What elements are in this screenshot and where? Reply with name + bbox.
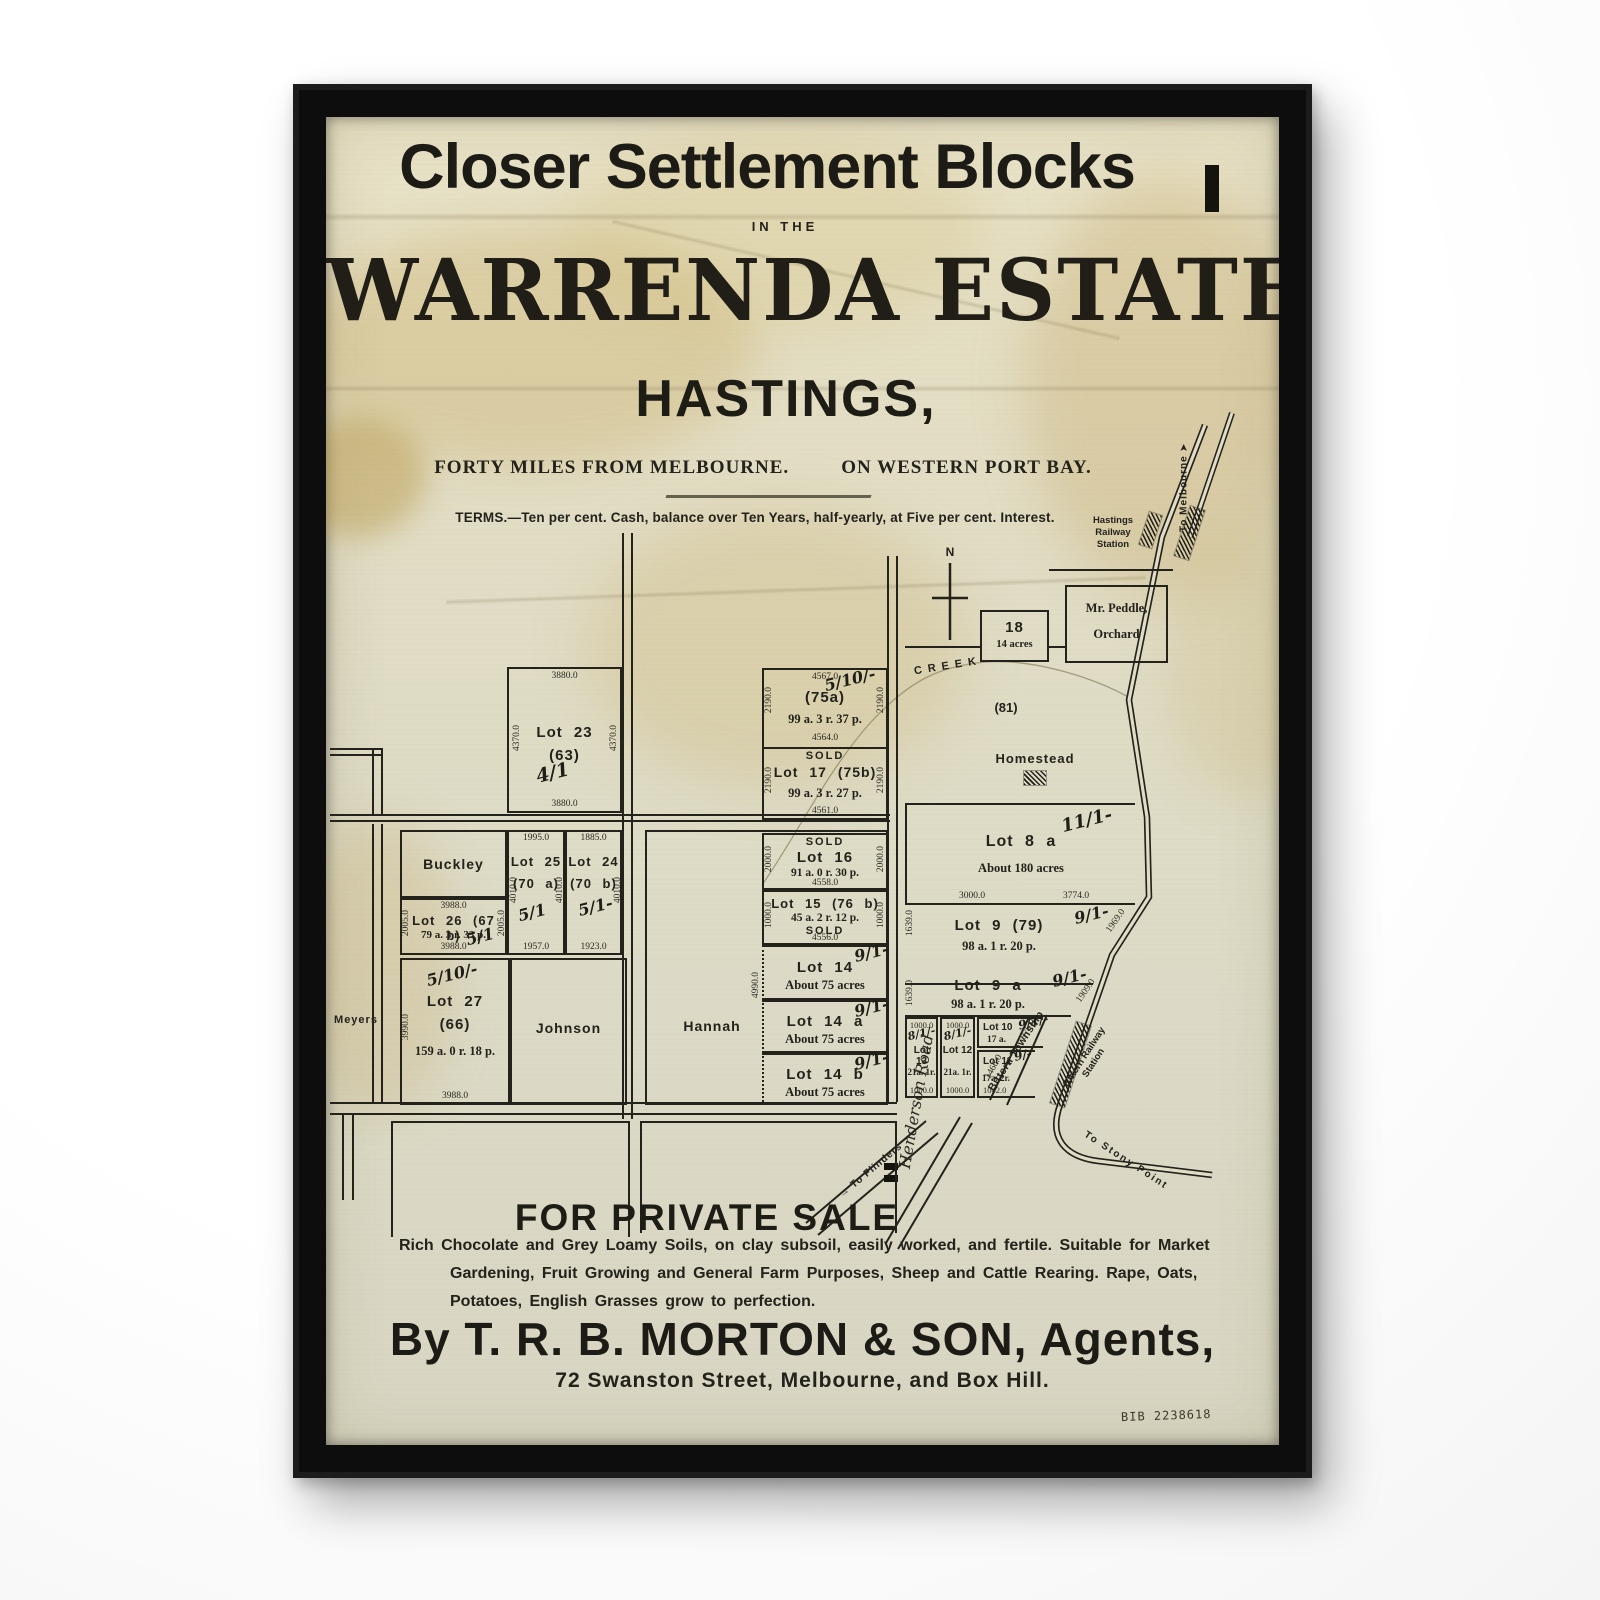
lot-name: Lot 17 (75b) [764, 764, 886, 780]
north-label: N [937, 545, 963, 559]
description-line: Rich Chocolate and Grey Loamy Soils, on … [399, 1237, 1210, 1255]
lot-dim: 1885.0 [567, 833, 620, 843]
lot-dim: 2190.0 [876, 678, 886, 722]
lot-dim: 4558.0 [764, 878, 886, 888]
owner-name-meyers: Meyers [328, 1014, 384, 1026]
block-81-label: (81) [966, 700, 1046, 715]
lot-dim: 1995.0 [509, 833, 563, 843]
lot-dim: 2190.0 [764, 678, 774, 722]
lot-name: Lot 24 [567, 854, 620, 869]
lot-area: About 75 acres [764, 978, 886, 993]
lot-dim: 3880.0 [509, 671, 620, 681]
lot-dim: 3990.0 [401, 1005, 411, 1049]
lot-16: SOLD Lot 16 91 a. 0 r. 30 p. 4558.0 [762, 833, 888, 890]
owner-block-buckley: Buckley [400, 830, 507, 898]
address-line: 72 Swanston Street, Melbourne, and Box H… [326, 1369, 1279, 1393]
lot-dim: 3774.0 [1063, 891, 1089, 901]
lot-name: Lot 9 (79) [905, 917, 1093, 934]
lot-name: Lot 27 [402, 993, 508, 1010]
description-line: Gardening, Fruit Growing and General Far… [450, 1265, 1197, 1283]
lot-name: Lot 16 [764, 849, 886, 866]
homestead-label: Homestead [990, 751, 1080, 766]
lot-dim: 4990.0 [751, 963, 761, 1007]
lot-dim: 3880.0 [509, 799, 620, 809]
lot-dim: 2000.0 [764, 837, 774, 881]
road-stub-far-left [342, 1115, 354, 1200]
lot-number: (66) [402, 1016, 508, 1033]
lot-name: Lot 12 [942, 1045, 973, 1056]
up-arrow-icon: ➤ [1179, 443, 1189, 452]
peddle-orchard: Mr. Peddle, Orchard [1065, 585, 1168, 663]
lot-dim: 4561.0 [764, 806, 886, 816]
lot-18: 18 14 acres [980, 610, 1049, 662]
lot-area: 98 a. 1 r. 20 p. [905, 939, 1093, 954]
lot-name: Lot 25 [509, 854, 563, 869]
owner-name: Johnson [512, 1020, 625, 1036]
lot-name: 18 [982, 619, 1047, 636]
owner-name: Hannah [657, 1018, 767, 1034]
lot-name: Lot 23 [509, 724, 620, 741]
road-henderson [887, 556, 898, 1102]
lot-17-block: 4567.0 (75a) 99 a. 3 r. 37 p. 4564.0 SOL… [762, 668, 888, 820]
lot-dim: 1923.0 [567, 942, 620, 952]
lot-area: About 180 acres [907, 861, 1135, 876]
sold-label: SOLD [764, 750, 886, 762]
homestead-building [1024, 771, 1046, 785]
owner-name: Mr. Peddle, [1067, 601, 1166, 616]
lot-area: 14 acres [982, 639, 1047, 650]
lot-dim: 3988.0 [402, 901, 505, 911]
lot-dim: 1000.0 [876, 893, 886, 937]
lot-name: Lot 10 [983, 1022, 1012, 1033]
agent-line: By T. R. B. MORTON & SON, Agents, [326, 1312, 1279, 1366]
owner-name: Buckley [402, 856, 505, 872]
lot-area: 21a. 1r. [942, 1067, 973, 1077]
lot-dim: 4370.0 [512, 716, 522, 760]
lot-dim: 4010.0 [555, 868, 565, 912]
lot-area: 99 a. 3 r. 27 p. [764, 786, 886, 801]
lot-dim: 2005.0 [497, 901, 507, 945]
lot-name: Lot 15 (76 b) [764, 896, 886, 911]
lot-area: About 75 acres [764, 1085, 886, 1100]
lot-dim: 1000.0 [764, 893, 774, 937]
owner-name: Orchard [1067, 627, 1166, 642]
lot-dim: 3988.0 [402, 1091, 508, 1101]
lot-divider [762, 747, 888, 749]
north-arrow [932, 563, 968, 640]
estate-poster: Closer Settlement Blocks IN THE WARRENDA… [326, 117, 1279, 1445]
lot-dim: 4564.0 [764, 733, 886, 743]
lot-dim: 2190.0 [876, 758, 886, 802]
lot-name: (75a) [764, 689, 886, 706]
lot-dim: 4370.0 [609, 716, 619, 760]
sale-heading: FOR PRIVATE SALE [326, 1197, 1088, 1239]
lot-dim: 1000.0 [942, 1085, 973, 1095]
poster-frame: Closer Settlement Blocks IN THE WARRENDA… [293, 84, 1312, 1478]
lot-area: About 75 acres [764, 1032, 886, 1047]
lot-dim: 4556.0 [764, 933, 886, 943]
lot-area: 17 a. [987, 1035, 1006, 1045]
lot-area: 99 a. 3 r. 37 p. [764, 712, 886, 727]
lot-dim: 1957.0 [509, 942, 563, 952]
lot-dim: 3000.0 [959, 891, 985, 901]
road-stub-left-upper [372, 748, 383, 814]
sold-label: SOLD [764, 836, 886, 848]
hastings-station-label: Hastings Railway Station [1078, 515, 1148, 551]
lot-23: 3880.0 Lot 23 (63) 3880.0 [507, 667, 622, 813]
lot-dim: 4010.0 [613, 868, 623, 912]
lot-dim: 2000.0 [876, 837, 886, 881]
description-line: Potatoes, English Grasses grow to perfec… [450, 1293, 815, 1311]
lot-dim: 1639.0 [905, 901, 915, 945]
lot-12: 1000.0 8/1/- Lot 12 21a. 1r. 1000.0 [940, 1017, 975, 1098]
lot-dim: 2190.0 [764, 758, 774, 802]
owner-block-johnson: Johnson [510, 958, 627, 1105]
lot-dim: 1639.0 [905, 971, 915, 1015]
lot-name: Lot 8 a [907, 833, 1135, 851]
lot-area: 159 a. 0 r. 18 p. [402, 1044, 508, 1059]
lot-area: 45 a. 2 r. 12 p. [764, 912, 886, 924]
lot-15: Lot 15 (76 b) 45 a. 2 r. 12 p. SOLD 4556… [762, 890, 888, 945]
lot-dim: 2005.0 [401, 901, 411, 945]
road-stub-left-lower [372, 824, 383, 1102]
